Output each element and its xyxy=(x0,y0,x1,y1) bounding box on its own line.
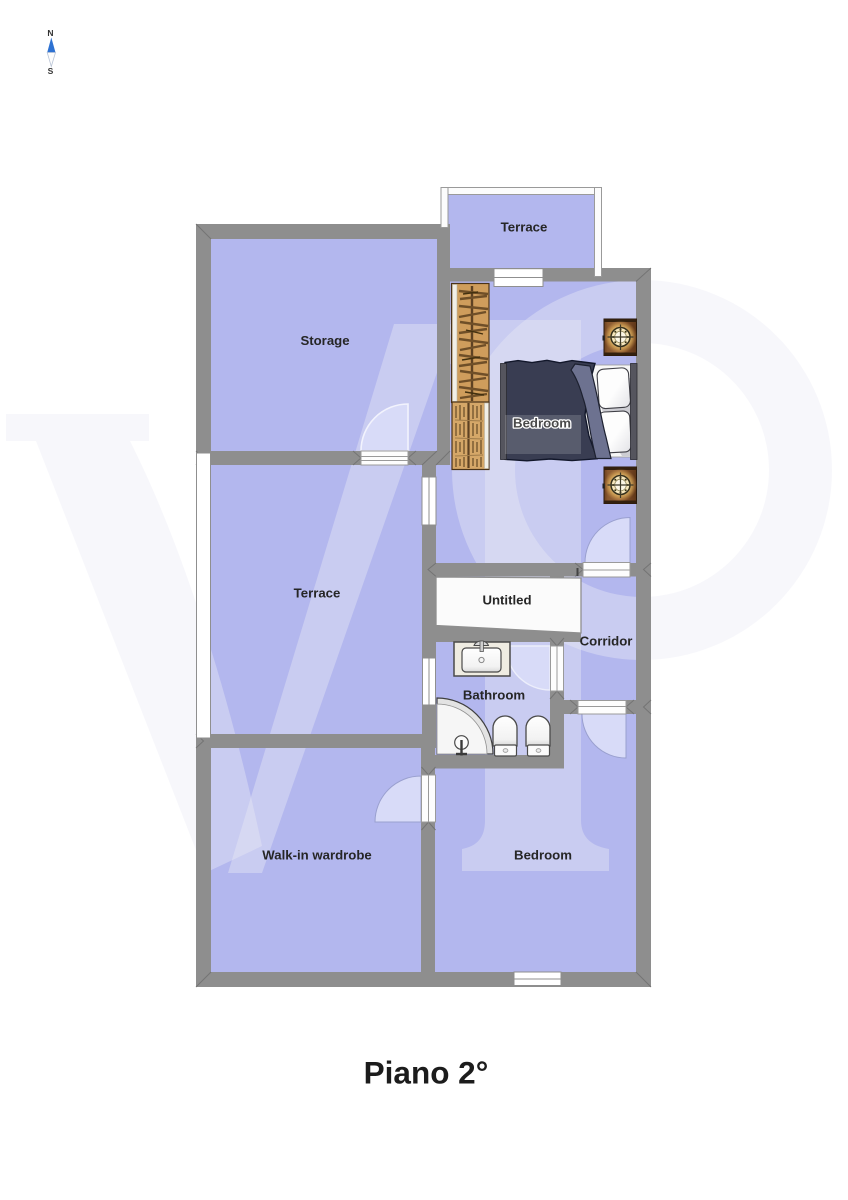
svg-text:Terrace: Terrace xyxy=(501,220,548,235)
svg-text:Storage: Storage xyxy=(300,333,349,348)
svg-text:Bedroom: Bedroom xyxy=(514,848,572,863)
svg-text:Bathroom: Bathroom xyxy=(463,688,525,703)
svg-text:Untitled: Untitled xyxy=(482,593,531,608)
svg-text:Bedroom: Bedroom xyxy=(513,416,571,431)
svg-text:Terrace: Terrace xyxy=(294,586,341,601)
svg-text:Piano 2°: Piano 2° xyxy=(364,1055,489,1091)
svg-text:S: S xyxy=(48,66,54,76)
svg-text:Walk-in wardrobe: Walk-in wardrobe xyxy=(262,848,371,863)
svg-text:N: N xyxy=(47,28,53,38)
svg-text:Corridor: Corridor xyxy=(580,634,633,649)
